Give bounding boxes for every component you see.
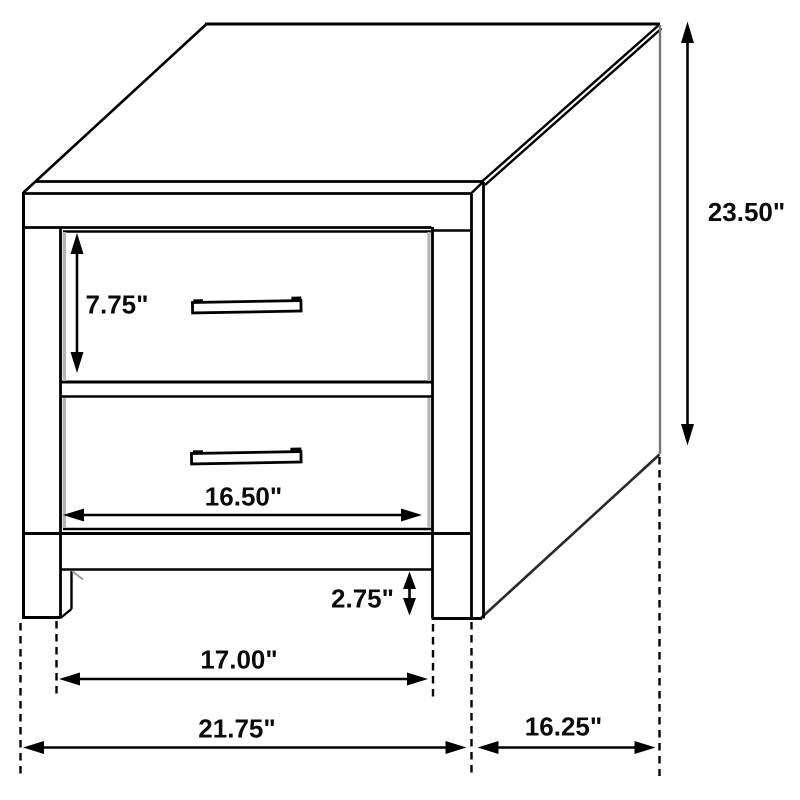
svg-text:16.25": 16.25" bbox=[525, 712, 602, 742]
svg-text:23.50": 23.50" bbox=[708, 197, 785, 227]
svg-text:16.50": 16.50" bbox=[205, 482, 282, 512]
svg-text:21.75": 21.75" bbox=[198, 714, 275, 744]
svg-text:2.75": 2.75" bbox=[331, 584, 394, 614]
svg-text:7.75": 7.75" bbox=[86, 290, 149, 320]
svg-text:17.00": 17.00" bbox=[200, 645, 277, 675]
